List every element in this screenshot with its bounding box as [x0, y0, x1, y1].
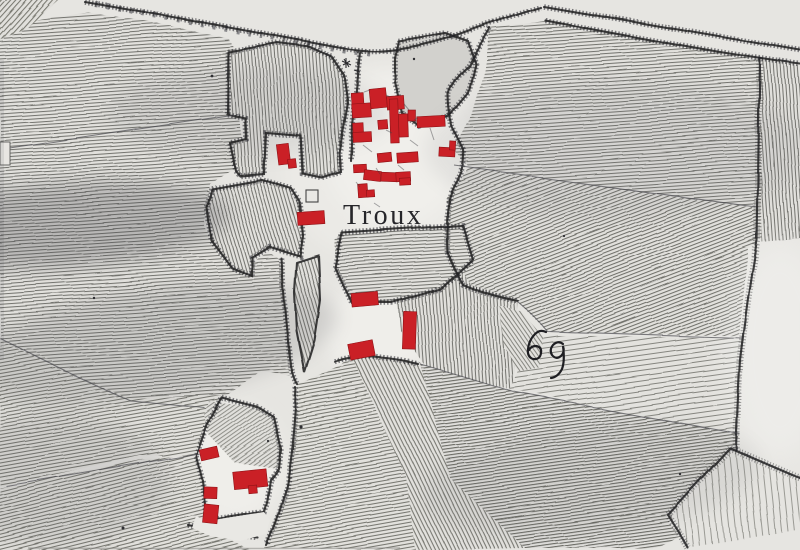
svg-text:Troux: Troux: [343, 200, 423, 231]
